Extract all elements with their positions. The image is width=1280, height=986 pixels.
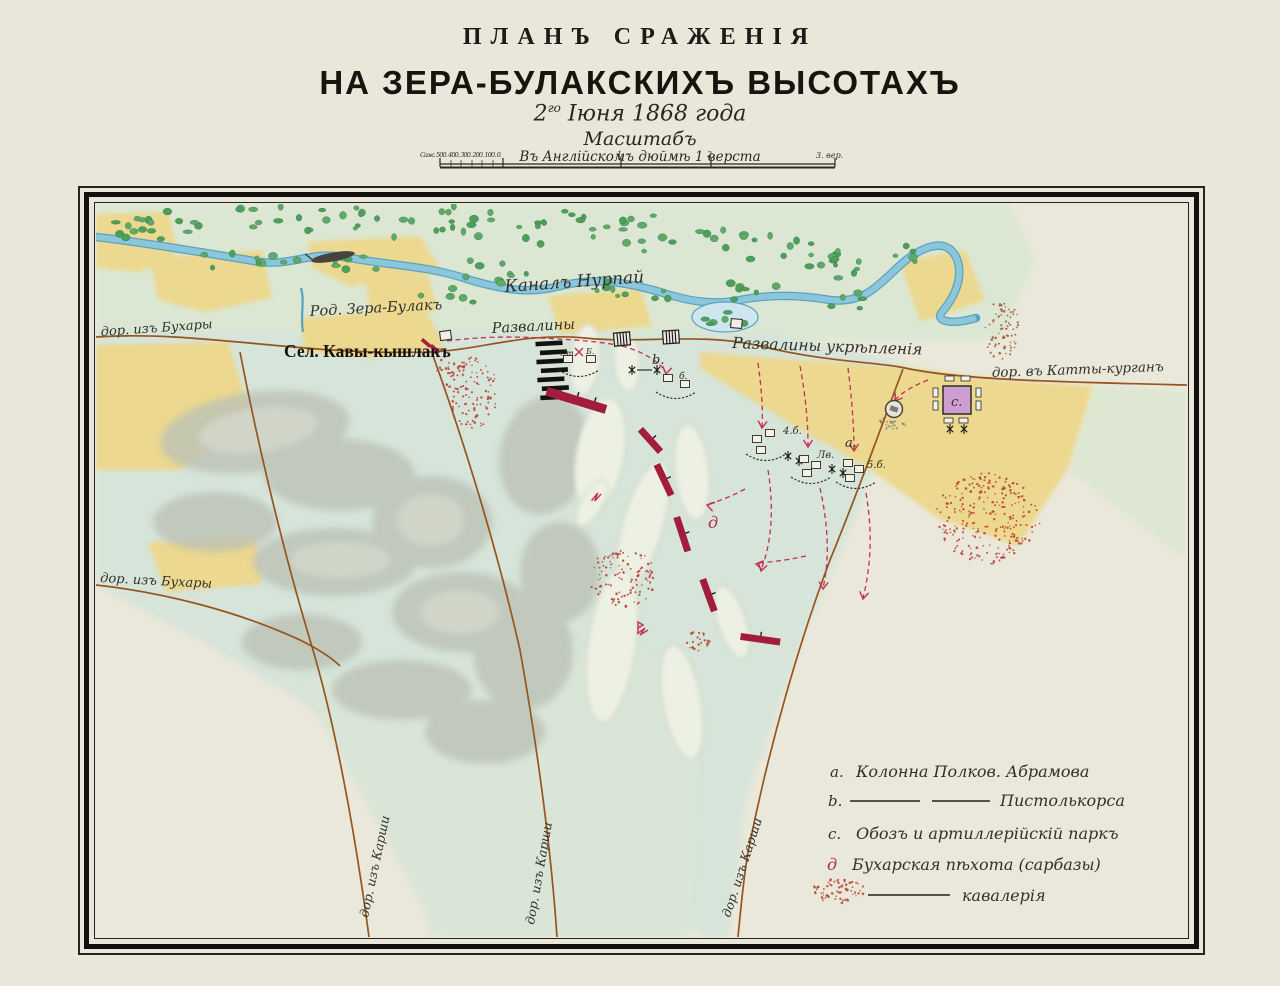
date-rest: Іюня 1868 года bbox=[561, 101, 747, 126]
scale-bar-sazhen-labels: Саж. 500. 400. 300. 200. 100. 0. bbox=[420, 151, 502, 159]
unit-label-5b: 5.б. bbox=[867, 460, 886, 471]
legend-text-c: Обозъ и артиллерійскій паркъ bbox=[856, 824, 1118, 843]
map-sheet: { "title": { "line1": "ПЛАНЪ СРАЖЕНІЯ", … bbox=[0, 0, 1280, 986]
map-subtitle: НА ЗЕРА-БУЛАКСКИХЪ ВЫСОТАХЪ bbox=[0, 64, 1280, 102]
legend-letter-a: а. bbox=[830, 763, 844, 781]
legend-text-b: Пистолькорса bbox=[999, 791, 1125, 810]
scale-bar-tick-2: 2. bbox=[706, 150, 715, 159]
unit-label-b-small: б. bbox=[679, 371, 687, 382]
unit-label-lv: Лв. bbox=[816, 450, 834, 461]
legend-letter-b: b. bbox=[828, 792, 842, 810]
legend-letter-c: с. bbox=[828, 825, 841, 843]
scale-bar-lines bbox=[440, 158, 835, 168]
legend-text-a: Колонна Полков. Абрамова bbox=[855, 762, 1089, 781]
unit-label-st: Ст. bbox=[560, 349, 576, 358]
map-date: 2го Іюня 1868 года bbox=[0, 101, 1280, 126]
scale-bar-tick-1: 1. bbox=[617, 150, 625, 159]
village-label: Сел. Кавы-кышлакъ bbox=[284, 341, 451, 361]
map-title: ПЛАНЪ СРАЖЕНІЯ bbox=[0, 24, 1280, 51]
ruins-square bbox=[439, 330, 451, 340]
unit-label-d: д bbox=[708, 513, 718, 532]
unit-label-b: b. bbox=[652, 353, 664, 368]
unit-label-bat: Б. bbox=[585, 347, 594, 356]
unit-label-a: а. bbox=[845, 436, 857, 451]
date-number: 2 bbox=[534, 101, 548, 126]
fort-ruins-square bbox=[731, 319, 743, 329]
unit-label-c: с. bbox=[951, 395, 962, 410]
legend-text-d: Бухарская пѣхота (сарбазы) bbox=[851, 855, 1101, 874]
map-canvas: Каналъ Нурпай Род. Зера-Булакъ Сел. Кавы… bbox=[96, 204, 1187, 937]
unit-label-4b: 4.б. bbox=[782, 426, 802, 437]
spring-stream bbox=[301, 288, 303, 332]
scale-bar: Саж. 500. 400. 300. 200. 100. 0. 1. 2. 3… bbox=[418, 142, 854, 182]
scale-bar-tick-3: 3. вер. bbox=[816, 151, 843, 160]
date-suffix: го bbox=[548, 101, 561, 115]
legend-text-cavalry: кавалерія bbox=[962, 886, 1046, 905]
legend-letter-d: д bbox=[827, 855, 837, 874]
kurgan-circle bbox=[886, 401, 903, 418]
